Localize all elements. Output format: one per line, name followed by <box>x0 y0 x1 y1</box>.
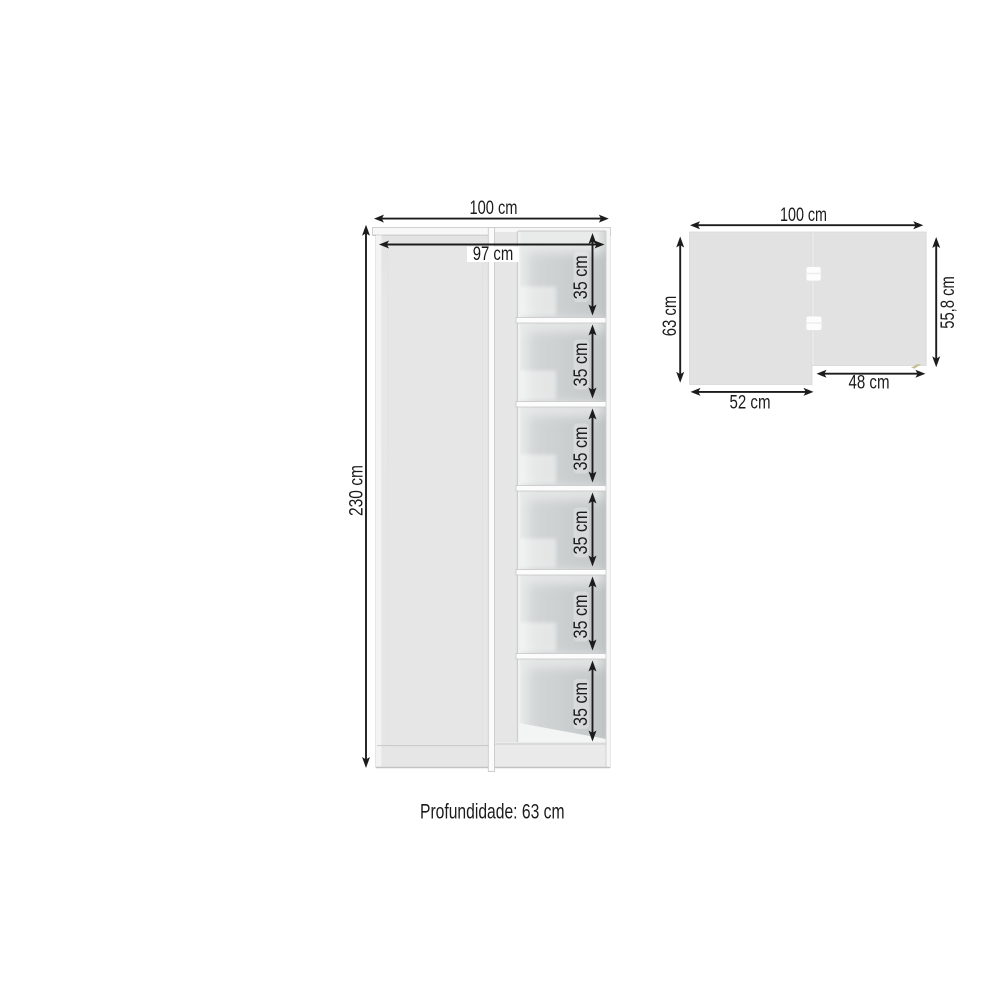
svg-text:35 cm: 35 cm <box>571 427 592 471</box>
svg-text:63 cm: 63 cm <box>660 296 681 337</box>
svg-text:100 cm: 100 cm <box>470 198 518 219</box>
svg-text:52 cm: 52 cm <box>730 392 771 413</box>
svg-text:35 cm: 35 cm <box>571 595 592 639</box>
svg-text:55,8 cm: 55,8 cm <box>938 276 959 329</box>
svg-text:Profundidade: 63 cm: Profundidade: 63 cm <box>420 801 565 824</box>
svg-text:35 cm: 35 cm <box>571 343 592 387</box>
svg-text:48 cm: 48 cm <box>849 373 890 394</box>
svg-text:100 cm: 100 cm <box>780 205 827 226</box>
svg-text:97 cm: 97 cm <box>473 244 514 265</box>
svg-text:35 cm: 35 cm <box>571 682 592 726</box>
svg-text:35 cm: 35 cm <box>571 255 592 299</box>
svg-text:230 cm: 230 cm <box>346 465 367 516</box>
svg-text:35 cm: 35 cm <box>571 511 592 555</box>
